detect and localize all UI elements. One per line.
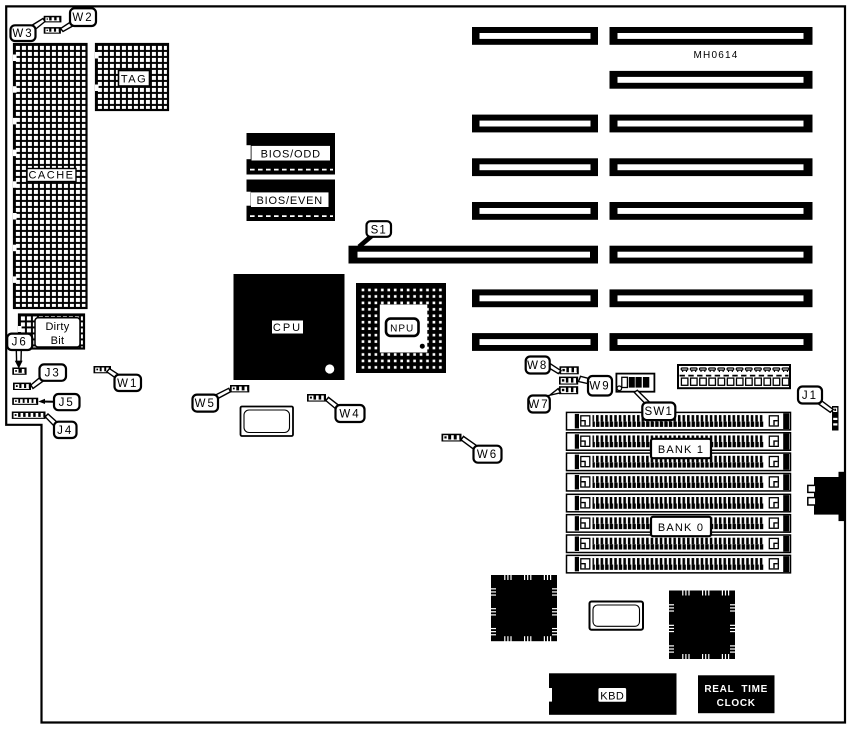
svg-text:REAL TIME: REAL TIME bbox=[704, 684, 768, 695]
svg-text:W9: W9 bbox=[589, 381, 610, 393]
svg-text:J1: J1 bbox=[802, 390, 818, 402]
svg-text:W8: W8 bbox=[527, 360, 548, 372]
svg-text:Dirty: Dirty bbox=[45, 321, 69, 333]
svg-text:J4: J4 bbox=[57, 425, 73, 437]
svg-text:W7: W7 bbox=[528, 399, 549, 411]
svg-text:W6: W6 bbox=[477, 449, 498, 461]
svg-text:NPU: NPU bbox=[390, 324, 414, 335]
svg-text:J5: J5 bbox=[59, 397, 75, 409]
svg-text:J6: J6 bbox=[12, 337, 28, 349]
svg-text:W2: W2 bbox=[72, 12, 93, 24]
svg-text:CACHE: CACHE bbox=[28, 170, 74, 182]
svg-text:BANK 1: BANK 1 bbox=[658, 444, 704, 456]
svg-text:CLOCK: CLOCK bbox=[717, 698, 756, 709]
svg-text:W4: W4 bbox=[339, 408, 360, 420]
svg-text:SW1: SW1 bbox=[645, 406, 674, 418]
svg-text:W3: W3 bbox=[12, 28, 33, 40]
svg-text:KBD: KBD bbox=[600, 690, 624, 702]
svg-text:W5: W5 bbox=[195, 398, 216, 410]
svg-text:TAG: TAG bbox=[121, 73, 147, 85]
svg-text:Bit: Bit bbox=[51, 335, 65, 347]
svg-text:J3: J3 bbox=[45, 368, 61, 380]
svg-text:W1: W1 bbox=[117, 378, 138, 390]
svg-text:BANK 0: BANK 0 bbox=[658, 522, 704, 534]
svg-text:CPU: CPU bbox=[273, 322, 302, 334]
svg-text:S1: S1 bbox=[371, 224, 387, 236]
svg-text:BIOS/EVEN: BIOS/EVEN bbox=[257, 195, 324, 207]
svg-text:BIOS/ODD: BIOS/ODD bbox=[261, 149, 321, 161]
svg-text:MH0614: MH0614 bbox=[694, 50, 739, 61]
